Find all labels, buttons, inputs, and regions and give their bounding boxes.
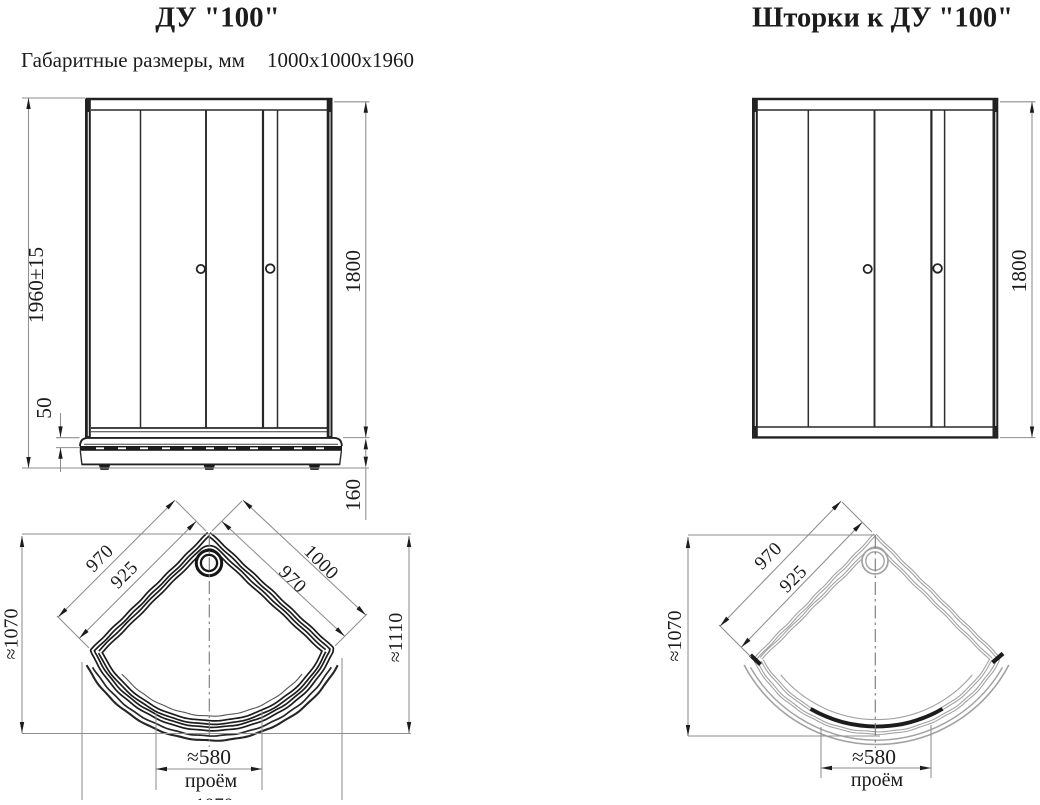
svg-text:1960±15: 1960±15 <box>24 247 48 323</box>
svg-text:≈1070: ≈1070 <box>185 795 233 800</box>
svg-text:проём: проём <box>185 770 238 792</box>
svg-text:1000х1000х1960: 1000х1000х1960 <box>267 48 414 72</box>
svg-text:50: 50 <box>32 397 56 419</box>
svg-text:Шторки к ДУ "100": Шторки к ДУ "100" <box>752 3 1013 34</box>
svg-text:≈580: ≈580 <box>852 745 896 769</box>
svg-text:1800: 1800 <box>341 250 365 293</box>
svg-text:≈1070: ≈1070 <box>664 611 686 662</box>
svg-text:ДУ "100": ДУ "100" <box>155 2 280 34</box>
svg-text:≈1070: ≈1070 <box>1 609 23 660</box>
svg-text:1800: 1800 <box>1007 250 1031 293</box>
svg-text:Габаритные размеры, мм: Габаритные размеры, мм <box>21 48 245 72</box>
svg-text:160: 160 <box>341 479 365 511</box>
svg-text:проём: проём <box>851 769 904 791</box>
svg-text:≈1110: ≈1110 <box>385 613 407 663</box>
svg-text:≈580: ≈580 <box>187 745 231 769</box>
